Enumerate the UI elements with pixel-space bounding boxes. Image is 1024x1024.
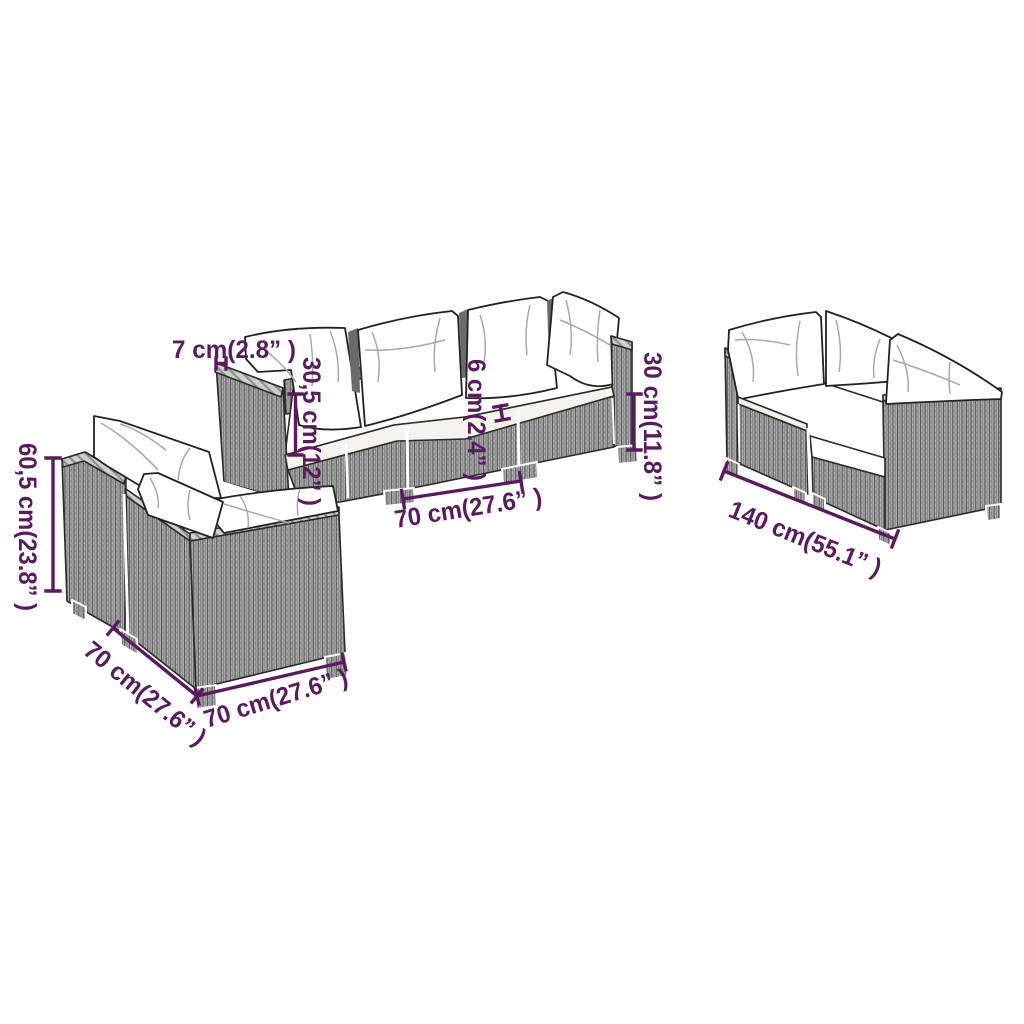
svg-text:30,5 cm(12” ): 30,5 cm(12” )	[297, 357, 325, 506]
svg-text:6 cm(2.4” ): 6 cm(2.4” )	[462, 359, 490, 481]
svg-text:7 cm(2.8” ): 7 cm(2.8” )	[172, 336, 296, 364]
svg-text:60,5 cm(23.8” ): 60,5 cm(23.8” )	[13, 443, 41, 611]
svg-text:30 cm(11.8” ): 30 cm(11.8” )	[638, 352, 666, 501]
